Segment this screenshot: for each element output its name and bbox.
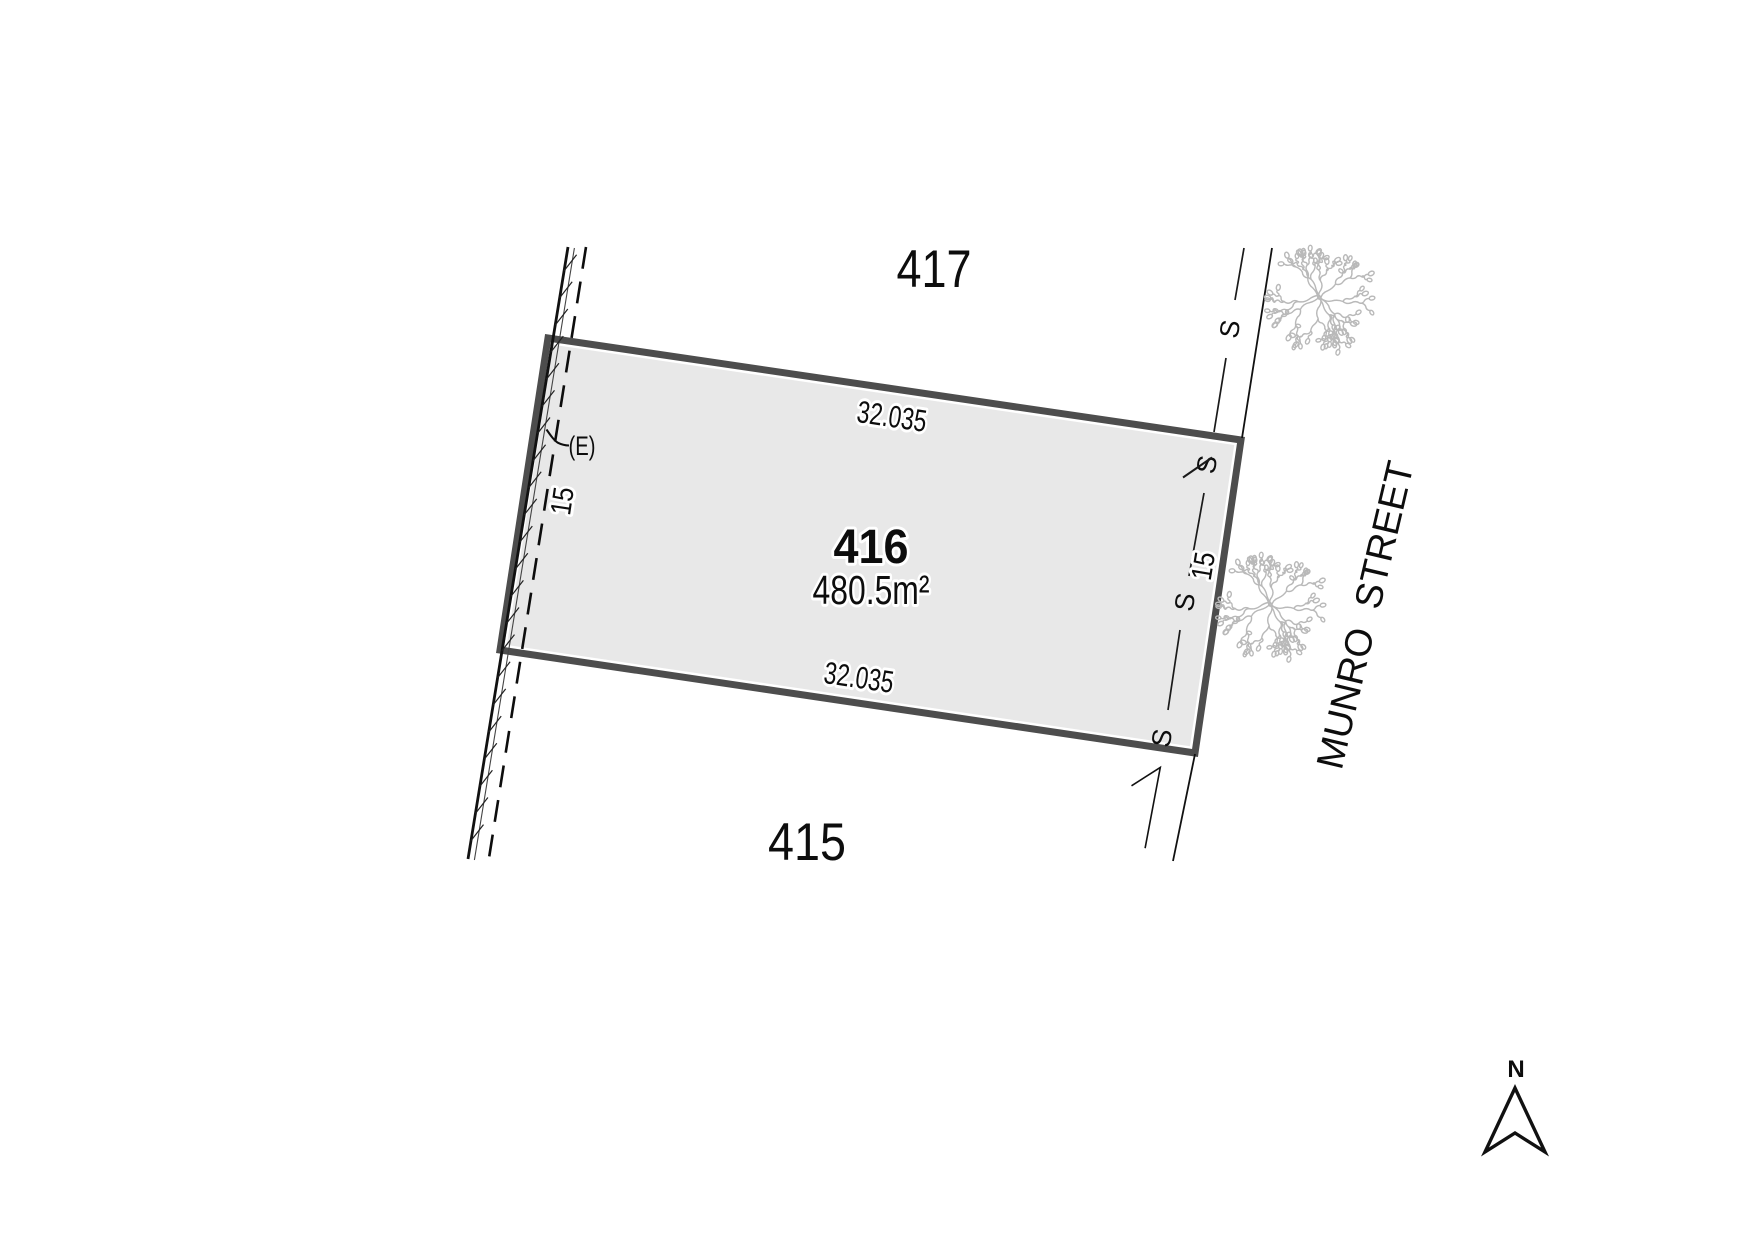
svg-text:MUNRO STREET: MUNRO STREET [1309, 457, 1422, 773]
svg-text:15: 15 [545, 485, 581, 517]
svg-text:417: 417 [897, 240, 972, 299]
svg-text:15: 15 [1186, 550, 1222, 583]
svg-text:415: 415 [768, 813, 846, 872]
svg-text:(E): (E) [569, 431, 596, 461]
svg-text:N: N [1507, 1056, 1524, 1083]
svg-text:480.5m²: 480.5m² [813, 567, 930, 613]
svg-text:S: S [1214, 318, 1247, 341]
